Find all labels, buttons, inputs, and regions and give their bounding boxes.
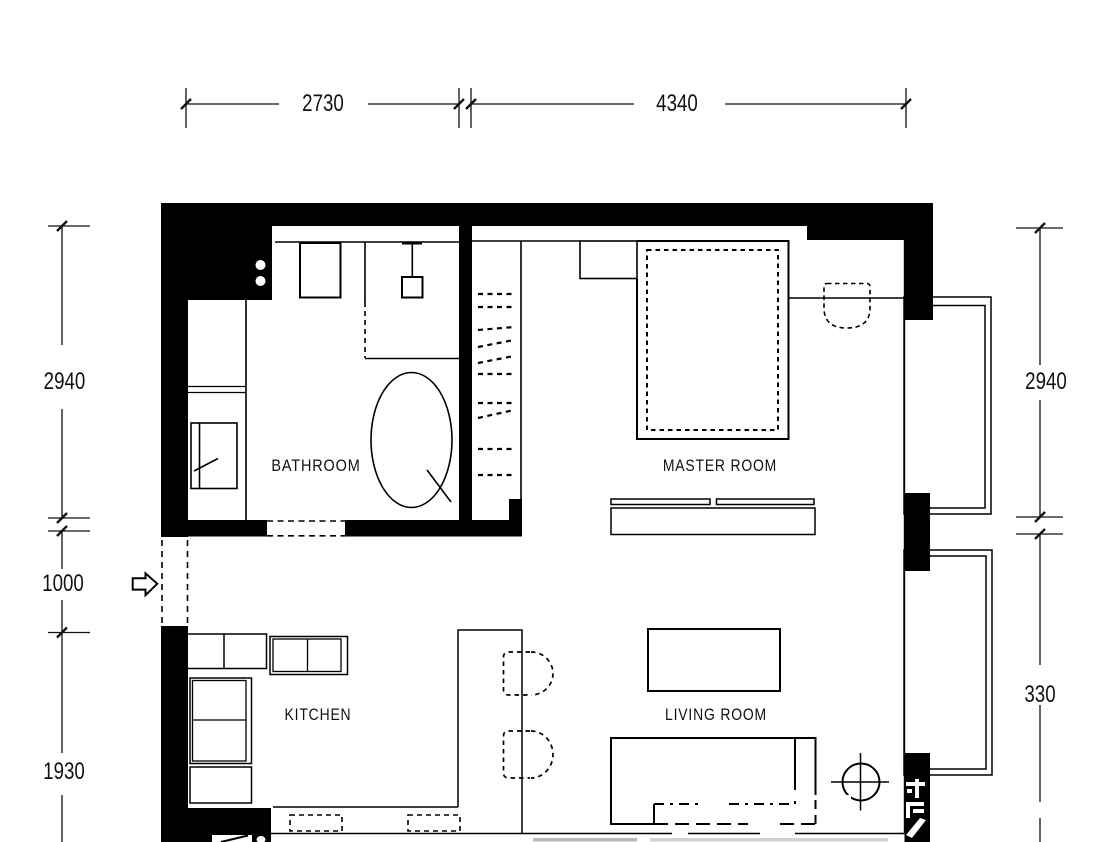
svg-text:BATHROOM: BATHROOM — [271, 457, 360, 475]
svg-text:330: 330 — [1024, 681, 1055, 708]
svg-text:4340: 4340 — [656, 90, 698, 117]
svg-text:KITCHEN: KITCHEN — [285, 706, 352, 725]
svg-text:2730: 2730 — [302, 90, 344, 117]
svg-text:2940: 2940 — [44, 368, 86, 395]
svg-text:LIVING ROOM: LIVING ROOM — [665, 706, 767, 725]
svg-text:1930: 1930 — [43, 758, 85, 785]
svg-text:MASTER ROOM: MASTER ROOM — [663, 457, 777, 476]
svg-text:2940: 2940 — [1025, 368, 1067, 395]
svg-text:1000: 1000 — [42, 570, 84, 597]
